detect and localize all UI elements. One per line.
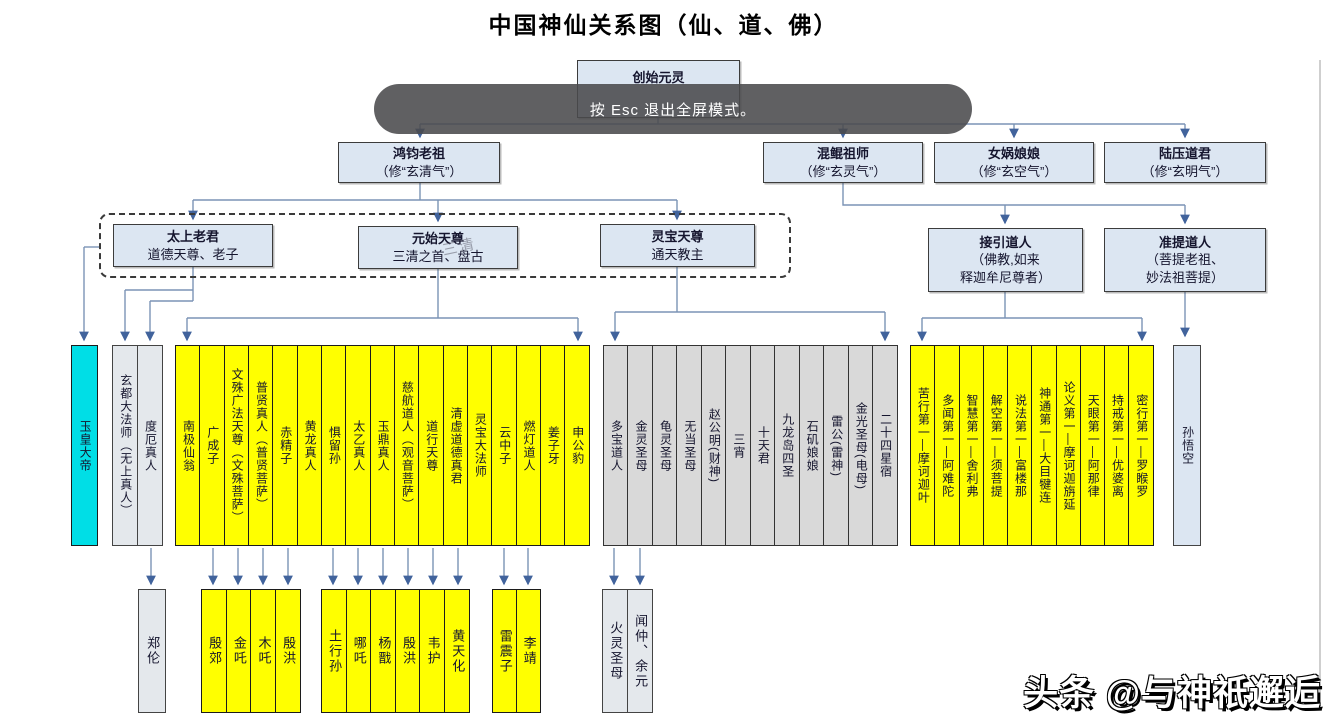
deity-column: 燃灯道人 <box>516 345 542 546</box>
deity-name: 李靖 <box>521 636 535 666</box>
deity-name: 密行第一—罗睺罗 <box>1135 394 1148 498</box>
bottom-group-3: 雷震子 李靖 <box>492 589 541 713</box>
deity-column: 殷洪 <box>275 589 301 713</box>
deity-column: 密行第一—罗睺罗 <box>1128 345 1154 546</box>
deity-name: 二十四星宿 <box>878 413 891 478</box>
deity-column: 慈航道人（观音菩萨） <box>394 345 420 546</box>
deity-column: 闻仲、余元 <box>627 589 653 713</box>
node-subtitle: 通天教主 <box>651 246 703 264</box>
deity-column: 惧留孙 <box>321 345 347 546</box>
deity-name: 南极仙翁 <box>181 420 194 472</box>
deity-name: 度厄真人 <box>143 420 156 472</box>
deity-column: 文殊广法天尊（文殊菩萨） <box>224 345 250 546</box>
jade-emperor-column-group: 玉皇大帝 <box>71 345 98 546</box>
deity-column: 赤精子 <box>272 345 298 546</box>
deity-column: 申公豹 <box>564 345 590 546</box>
canvas: 中国神仙关系图（仙、道、佛） <box>0 0 1327 728</box>
deity-name: 多闻第一—阿难陀 <box>941 394 954 498</box>
diagram-title: 中国神仙关系图（仙、道、佛） <box>0 6 1327 40</box>
deity-name: 燃灯道人 <box>522 420 535 472</box>
deity-name: 姜子牙 <box>546 426 559 465</box>
deity-column: 黄天化 <box>444 589 470 713</box>
buddhist-disciples-group: 苦行第一—摩诃迦叶 多闻第一—阿难陀 智慧第一—舍利弗 解空第一—须菩提 说法第… <box>910 345 1154 546</box>
deity-column: 殷郊 <box>201 589 227 713</box>
sun-wukong-column-group: 孙悟空 <box>1173 345 1201 546</box>
deity-column: 金光圣母(电母) <box>848 345 874 546</box>
bottom-group-2: 土行孙 哪吒 杨戬 殷洪 韦护 黄天化 <box>321 589 470 713</box>
deity-column: 九龙岛四圣 <box>774 345 800 546</box>
node-subtitle: （修“玄明气”） <box>1142 163 1229 181</box>
bottom-zhenglun-group: 郑伦 <box>138 589 166 713</box>
deity-column: 玄都大法师（无上真人） <box>112 345 138 546</box>
deity-name: 惧留孙 <box>327 426 340 465</box>
deity-column: 殷洪 <box>395 589 421 713</box>
deity-name: 金灵圣母 <box>634 420 647 472</box>
node-subtitle: （修“玄清气”） <box>376 163 463 181</box>
deity-column: 多宝道人 <box>603 345 629 546</box>
deity-name: 苦行第一—摩诃迦叶 <box>916 387 929 504</box>
node-nuwa-niangniang: 女娲娘娘 （修“玄空气”） <box>934 142 1094 183</box>
deity-name: 木吒 <box>256 636 270 666</box>
deity-name: 石矶娘娘 <box>805 420 818 472</box>
deity-column: 雷震子 <box>492 589 517 713</box>
deity-name: 杨戬 <box>376 636 390 666</box>
deity-column: 杨戬 <box>370 589 396 713</box>
toast-text: 按 Esc 退出全屏模式。 <box>590 99 756 120</box>
deity-column: 神通第一—大目犍连 <box>1031 345 1057 546</box>
deity-name: 普贤真人（普贤菩萨） <box>254 381 267 511</box>
deity-column: 韦护 <box>419 589 445 713</box>
deity-name: 玉皇大帝 <box>78 420 91 472</box>
node-label: 准提道人 <box>1159 234 1211 252</box>
node-label: 女娲娘娘 <box>988 145 1040 163</box>
deity-column: 龟灵圣母 <box>652 345 678 546</box>
deity-name: 广成子 <box>206 426 219 465</box>
deity-name: 黄龙真人 <box>303 420 316 472</box>
deity-column: 黄龙真人 <box>297 345 323 546</box>
deity-column: 金灵圣母 <box>627 345 653 546</box>
deity-column-jade-emperor: 玉皇大帝 <box>71 345 98 546</box>
deity-column: 灵宝大法师 <box>467 345 493 546</box>
node-zhunti-daoren: 准提道人 （菩提老祖、 妙法祖菩提） <box>1104 228 1266 292</box>
watermark-toutiao: 头条 @与神祇邂逅 <box>1023 665 1321 716</box>
deity-name: 火灵圣母 <box>608 621 622 681</box>
deity-name: 殷洪 <box>401 636 415 666</box>
deity-column: 木吒 <box>250 589 276 713</box>
deity-column: 无当圣母 <box>676 345 702 546</box>
deity-column: 赵公明(财神) <box>701 345 727 546</box>
deity-name: 土行孙 <box>327 629 341 674</box>
node-label: 陆压道君 <box>1159 145 1211 163</box>
deity-name: 道行天尊 <box>425 420 438 472</box>
deity-column: 道行天尊 <box>418 345 444 546</box>
deity-column: 苦行第一—摩诃迦叶 <box>910 345 936 546</box>
deity-column: 广成子 <box>199 345 225 546</box>
deity-name: 黄天化 <box>450 629 464 674</box>
deity-name: 说法第一—富楼那 <box>1013 394 1026 498</box>
deity-column: 土行孙 <box>321 589 347 713</box>
deity-column: 普贤真人（普贤菩萨） <box>248 345 274 546</box>
node-taishang-laojun: 太上老君 道德天尊、老子 <box>113 224 273 267</box>
deity-name: 文殊广法天尊（文殊菩萨） <box>230 368 243 524</box>
node-yuanshi-tianzun: 元始天尊 三清之首、盘古 <box>358 226 518 269</box>
deity-name: 金吒 <box>232 636 246 666</box>
deity-column: 三宵 <box>725 345 751 546</box>
node-label: 太上老君 <box>167 228 219 246</box>
deity-column: 南极仙翁 <box>175 345 201 546</box>
deity-column: 持戒第一—优婆离 <box>1104 345 1130 546</box>
deity-name: 韦护 <box>425 636 439 666</box>
deity-name: 云中子 <box>498 426 511 465</box>
node-jieyin-daoren: 接引道人 （佛教,如来 释迦牟尼尊者） <box>928 228 1083 292</box>
deity-name: 多宝道人 <box>609 420 622 472</box>
deity-name: 太乙真人 <box>352 420 365 472</box>
deity-column-zhenglun: 郑伦 <box>138 589 166 713</box>
deity-column: 天眼第一—阿那律 <box>1080 345 1106 546</box>
deity-name: 天眼第一—阿那律 <box>1086 394 1099 498</box>
node-hunkun-zushi: 混鲲祖师 （修“玄灵气”） <box>763 142 923 183</box>
deity-name: 持戒第一—优婆离 <box>1110 394 1123 498</box>
deity-name: 雷公(雷神) <box>830 415 843 477</box>
deity-name: 慈航道人（观音菩萨） <box>400 381 413 511</box>
node-label: 鸿钧老祖 <box>393 145 445 163</box>
deity-name: 三宵 <box>732 433 745 459</box>
deity-name: 十天君 <box>756 426 769 465</box>
deity-name: 灵宝大法师 <box>473 413 486 478</box>
deity-column: 说法第一—富楼那 <box>1007 345 1033 546</box>
deity-name: 孙悟空 <box>1180 426 1193 465</box>
node-lingbao-tianzun: 灵宝天尊 通天教主 <box>600 224 755 267</box>
deity-name: 神通第一—大目犍连 <box>1038 387 1051 504</box>
deity-name: 龟灵圣母 <box>658 420 671 472</box>
node-label: 灵宝天尊 <box>651 228 703 246</box>
deity-name: 申公豹 <box>571 426 584 465</box>
deity-name: 论义第一—摩诃迦旃延 <box>1062 381 1075 511</box>
node-label: 接引道人 <box>979 234 1031 252</box>
node-hongjun-laozu: 鸿钧老祖 （修“玄清气”） <box>338 142 500 183</box>
deity-name: 智慧第一—舍利弗 <box>965 394 978 498</box>
deity-name: 郑伦 <box>145 636 159 666</box>
deity-column-sun-wukong: 孙悟空 <box>1173 345 1201 546</box>
deity-name: 赵公明(财神) <box>707 408 720 483</box>
node-subtitle: （菩提老祖、 妙法祖菩提） <box>1146 251 1224 286</box>
node-subtitle: （佛教,如来 释迦牟尼尊者） <box>960 251 1051 286</box>
deity-column: 十天君 <box>750 345 776 546</box>
deity-column: 石矶娘娘 <box>799 345 825 546</box>
deity-column: 解空第一—须菩提 <box>983 345 1009 546</box>
deity-column: 二十四星宿 <box>872 345 898 546</box>
jie-sect-group: 多宝道人 金灵圣母 龟灵圣母 无当圣母 赵公明(财神) 三宵 十天君 九龙岛四圣… <box>603 345 898 546</box>
deity-name: 玄都大法师（无上真人） <box>119 374 132 517</box>
node-label: 混鲲祖师 <box>817 145 869 163</box>
deity-column: 雷公(雷神) <box>823 345 849 546</box>
deity-column: 太乙真人 <box>345 345 371 546</box>
deity-name: 清虚道德真君 <box>449 407 462 485</box>
deity-column: 清虚道德真君 <box>443 345 469 546</box>
node-luya-daojun: 陆压道君 （修“玄明气”） <box>1104 142 1266 183</box>
deity-name: 殷洪 <box>281 636 295 666</box>
node-subtitle: （修“玄空气”） <box>971 163 1058 181</box>
deity-name: 闻仲、余元 <box>633 614 647 689</box>
deity-name: 金光圣母(电母) <box>854 402 867 490</box>
chan-sect-group: 南极仙翁 广成子 文殊广法天尊（文殊菩萨） 普贤真人（普贤菩萨） 赤精子 黄龙真… <box>175 345 590 546</box>
deity-column: 金吒 <box>226 589 252 713</box>
node-subtitle: 道德天尊、老子 <box>147 246 238 264</box>
deity-name: 赤精子 <box>279 426 292 465</box>
deity-name: 雷震子 <box>497 629 511 674</box>
deity-name: 无当圣母 <box>683 420 696 472</box>
deity-name: 解空第一—须菩提 <box>989 394 1002 498</box>
deity-column: 智慧第一—舍利弗 <box>959 345 985 546</box>
bottom-group-1: 殷郊 金吒 木吒 殷洪 <box>201 589 301 713</box>
deity-column: 度厄真人 <box>137 345 163 546</box>
deity-column: 哪吒 <box>346 589 372 713</box>
taishang-disciples-group: 玄都大法师（无上真人） 度厄真人 <box>112 345 163 546</box>
deity-column: 火灵圣母 <box>602 589 628 713</box>
node-subtitle: （修“玄灵气”） <box>800 163 887 181</box>
deity-column: 多闻第一—阿难陀 <box>934 345 960 546</box>
deity-name: 九龙岛四圣 <box>781 413 794 478</box>
fullscreen-exit-toast: 按 Esc 退出全屏模式。 <box>374 84 972 134</box>
deity-name: 玉鼎真人 <box>376 420 389 472</box>
deity-name: 殷郊 <box>207 636 221 666</box>
deity-column: 玉鼎真人 <box>370 345 396 546</box>
deity-column: 云中子 <box>491 345 517 546</box>
bottom-group-4: 火灵圣母 闻仲、余元 <box>602 589 653 713</box>
deity-name: 哪吒 <box>351 636 365 666</box>
right-edge-rule <box>1319 60 1321 710</box>
deity-column: 李靖 <box>516 589 541 713</box>
deity-column: 姜子牙 <box>540 345 566 546</box>
deity-column: 论义第一—摩诃迦旃延 <box>1056 345 1082 546</box>
